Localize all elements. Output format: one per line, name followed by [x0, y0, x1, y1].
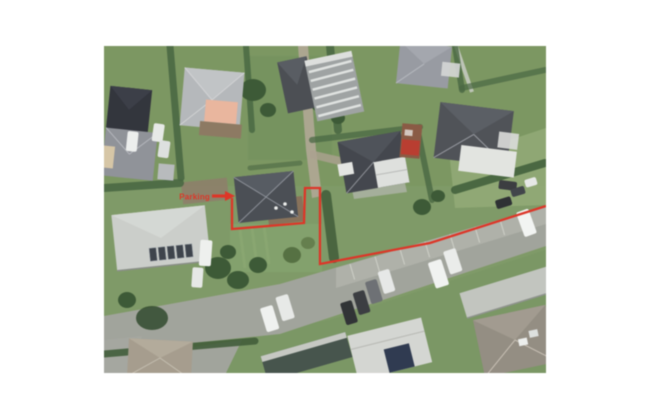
car-white — [126, 131, 139, 152]
patio-square — [337, 162, 354, 176]
aerial-photo-svg: Parking — [104, 46, 546, 373]
red-shed — [399, 123, 422, 159]
house-bottom-left — [127, 338, 193, 373]
salmon-roof-extension — [204, 99, 238, 124]
annotation-label: Parking — [179, 193, 210, 202]
small-shed — [157, 163, 174, 180]
aerial-photo: Parking — [104, 46, 546, 373]
outbuilding-left — [111, 205, 210, 271]
subject-house-roof — [234, 171, 298, 223]
patio-white — [497, 132, 519, 150]
screenshot-canvas: Parking — [0, 0, 650, 420]
